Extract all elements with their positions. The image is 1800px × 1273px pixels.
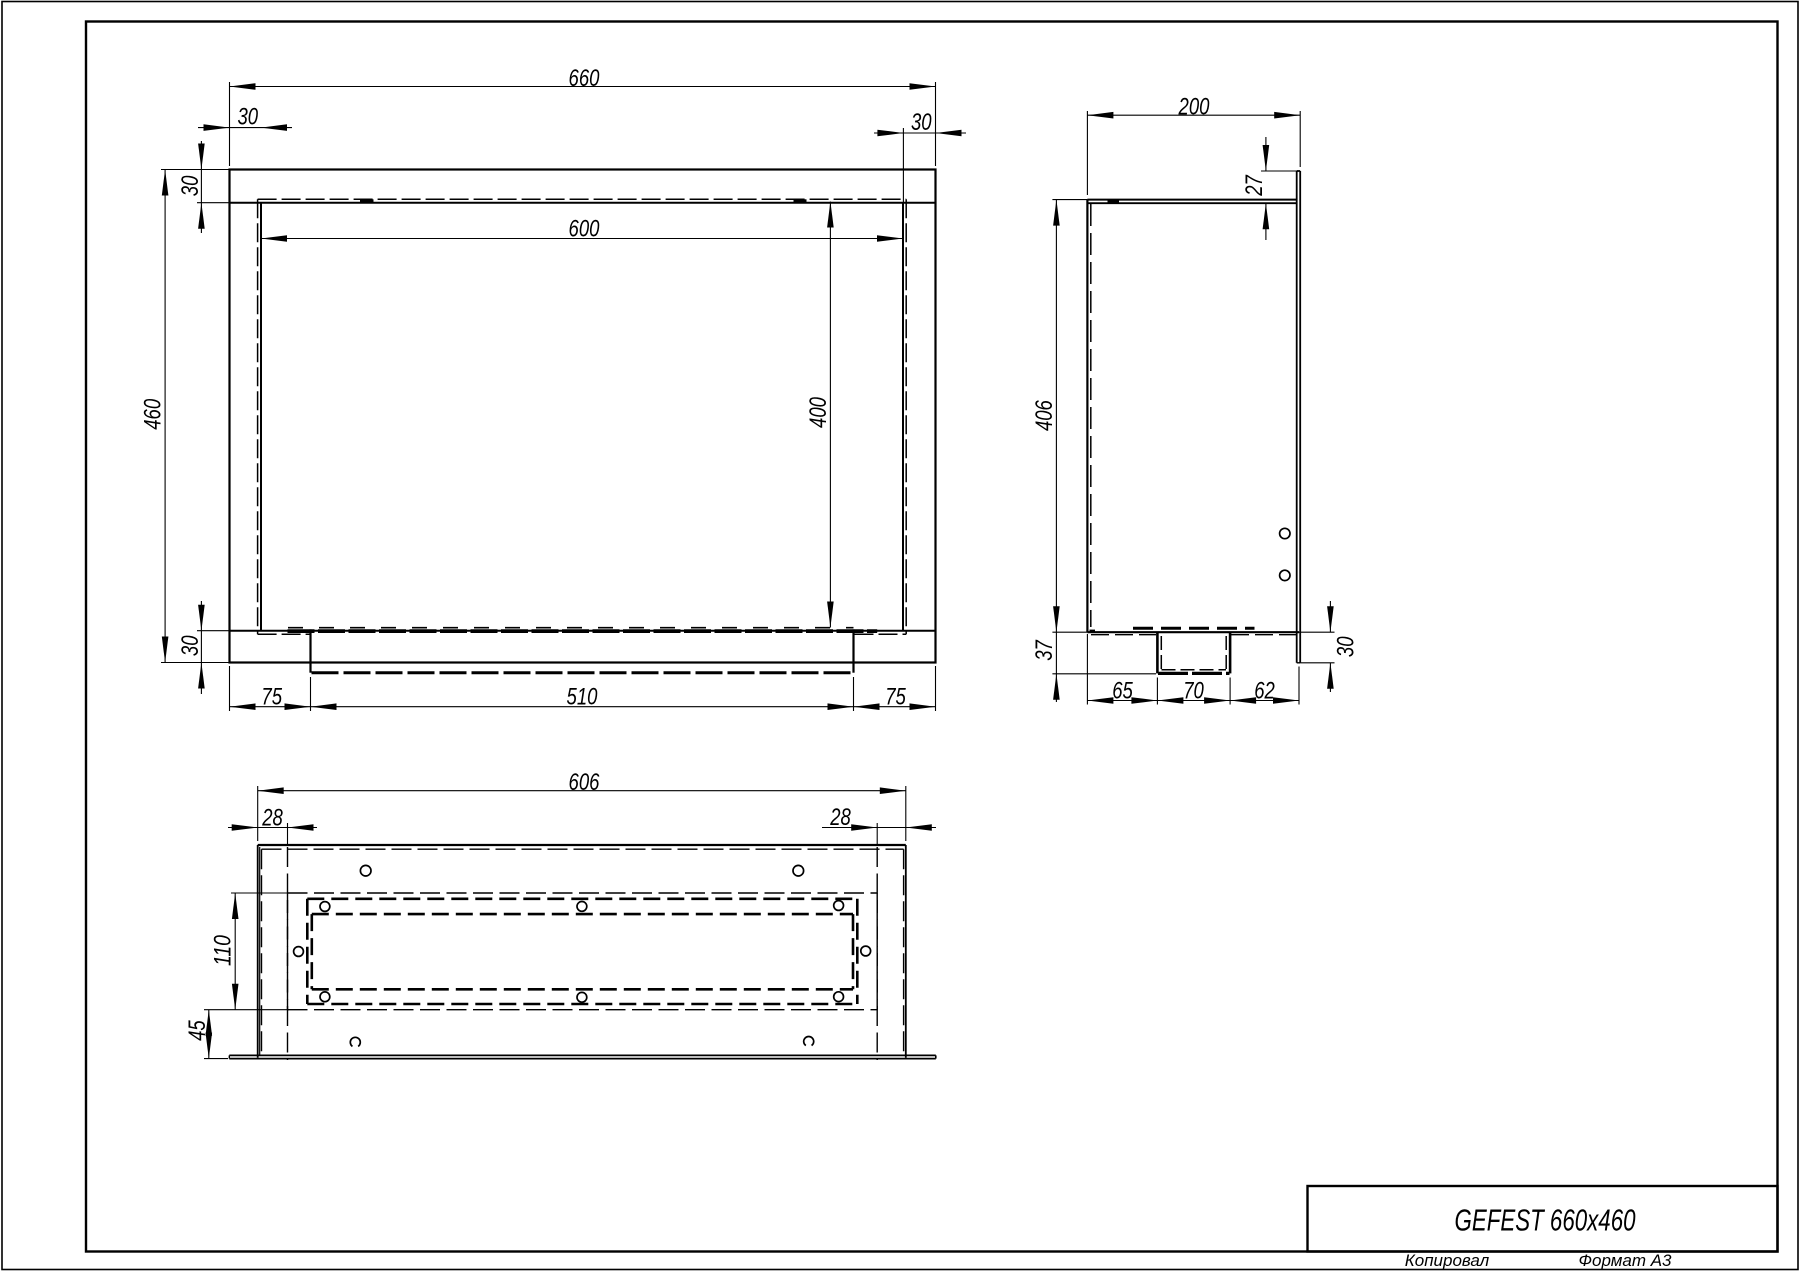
- svg-text:30: 30: [177, 175, 204, 196]
- svg-text:62: 62: [1254, 677, 1275, 704]
- svg-text:460: 460: [140, 398, 167, 429]
- svg-text:400: 400: [805, 397, 832, 428]
- svg-text:70: 70: [1183, 677, 1204, 704]
- svg-text:30: 30: [1333, 636, 1360, 657]
- svg-text:510: 510: [567, 683, 598, 710]
- svg-text:28: 28: [829, 804, 851, 831]
- svg-text:30: 30: [911, 109, 932, 136]
- svg-text:660: 660: [569, 65, 600, 92]
- svg-text:110: 110: [210, 935, 237, 966]
- svg-text:28: 28: [261, 804, 283, 831]
- svg-text:45: 45: [184, 1020, 211, 1041]
- svg-text:600: 600: [569, 215, 600, 242]
- svg-text:30: 30: [177, 635, 204, 656]
- svg-text:27: 27: [1241, 174, 1268, 197]
- svg-text:Копировал: Копировал: [1405, 1251, 1490, 1270]
- svg-text:GEFEST 660x460: GEFEST 660x460: [1455, 1203, 1636, 1238]
- svg-text:Формат А3: Формат А3: [1578, 1251, 1672, 1270]
- svg-text:37: 37: [1031, 639, 1058, 661]
- svg-text:606: 606: [569, 769, 600, 796]
- svg-text:406: 406: [1031, 400, 1058, 431]
- svg-text:30: 30: [238, 104, 259, 131]
- svg-text:200: 200: [1178, 94, 1210, 121]
- svg-text:65: 65: [1112, 677, 1133, 704]
- svg-text:75: 75: [261, 683, 282, 710]
- svg-text:75: 75: [885, 683, 906, 710]
